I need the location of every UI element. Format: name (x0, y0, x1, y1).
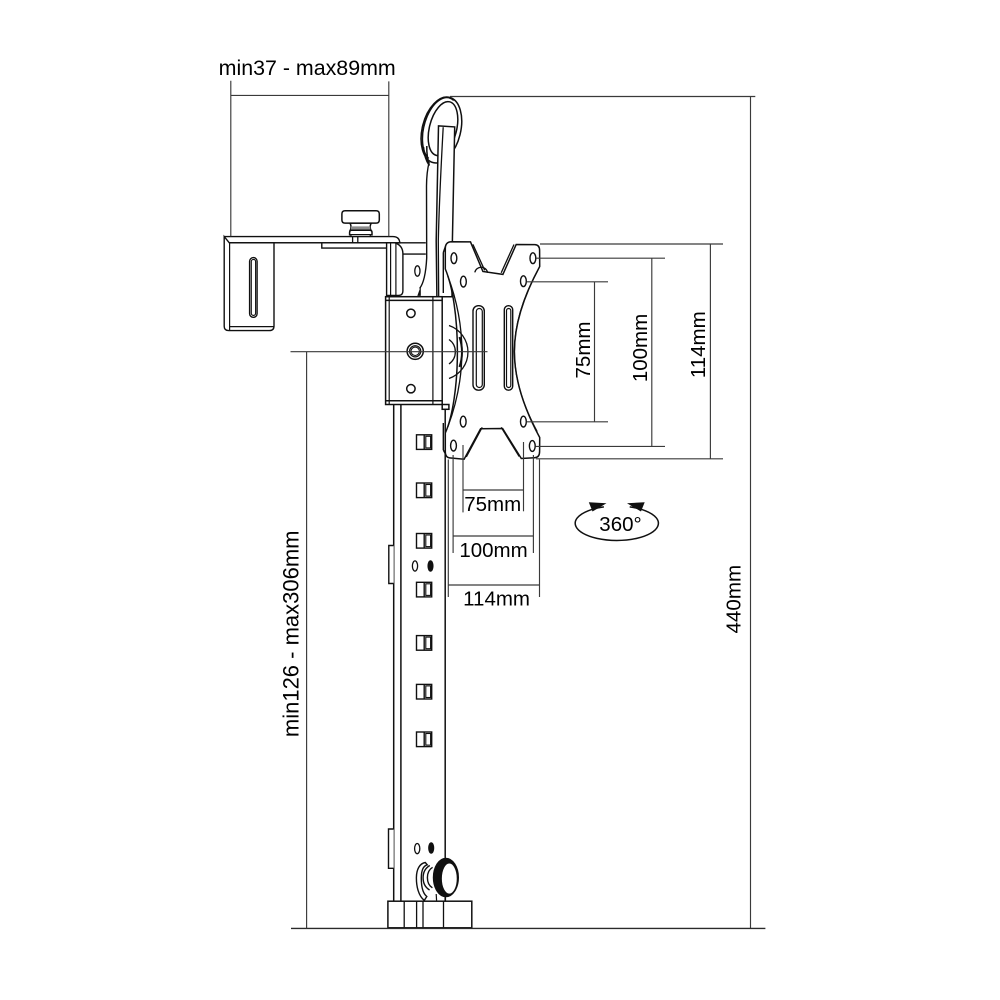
svg-text:75mm: 75mm (464, 493, 521, 516)
svg-text:min126 - max306mm: min126 - max306mm (279, 530, 304, 737)
svg-text:100mm: 100mm (459, 539, 527, 562)
svg-text:360°: 360° (599, 513, 641, 536)
svg-text:440mm: 440mm (722, 565, 745, 634)
svg-text:min37 - max89mm: min37 - max89mm (219, 56, 396, 80)
svg-text:114mm: 114mm (463, 587, 530, 610)
svg-text:75mm: 75mm (572, 322, 595, 379)
svg-text:100mm: 100mm (629, 314, 652, 382)
svg-text:114mm: 114mm (687, 311, 710, 378)
